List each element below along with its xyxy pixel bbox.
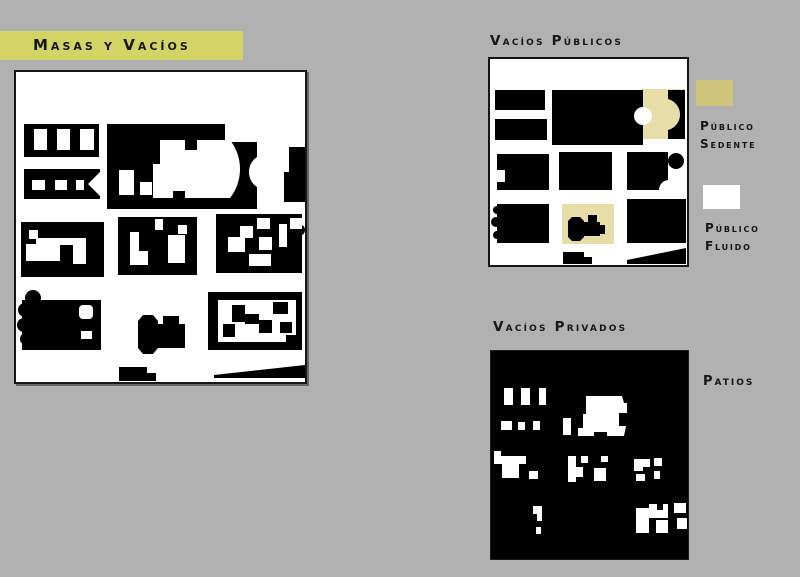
privados-section-label: Vacíos Privados [493,319,627,335]
title-banner: Masas y Vacíos [0,31,243,60]
fluido-legend-swatch [703,185,740,209]
sedente-legend-line1: Público [700,118,756,136]
vacios-privados-map [490,350,689,560]
poster-canvas: Masas y Vacíos Vacíos Públicos Público S… [0,0,800,577]
masas-y-vacios-map [14,70,307,384]
patios-legend-label: Patios [703,373,754,391]
sedente-legend-swatch [696,80,733,106]
sedente-legend-line2: Sedente [700,136,756,154]
fluido-legend-line1: Público [705,220,760,238]
fluido-legend-line2: Fluido [705,238,760,256]
fluido-legend-label: Público Fluido [705,220,760,255]
vacios-publicos-map [488,57,689,267]
sedente-legend-label: Público Sedente [700,118,756,153]
publicos-section-label: Vacíos Públicos [490,33,623,49]
page-title: Masas y Vacíos [0,31,243,60]
